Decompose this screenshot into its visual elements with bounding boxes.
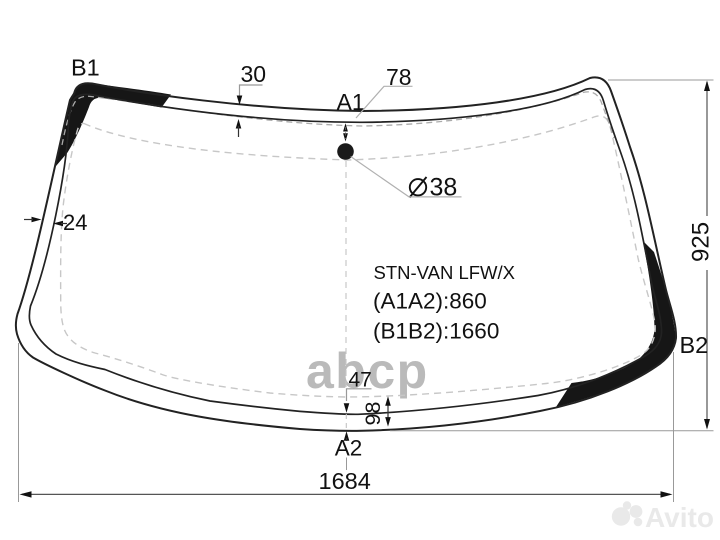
svg-text:98: 98 bbox=[361, 402, 385, 426]
svg-text:1684: 1684 bbox=[319, 468, 371, 494]
svg-text:925: 925 bbox=[688, 222, 715, 262]
svg-text:Avito: Avito bbox=[645, 502, 714, 533]
svg-text:A2: A2 bbox=[335, 436, 363, 461]
svg-text:30: 30 bbox=[241, 61, 267, 87]
svg-text:24: 24 bbox=[63, 210, 87, 235]
svg-text:STN-VAN LFW/X: STN-VAN LFW/X bbox=[374, 262, 516, 283]
svg-text:B1: B1 bbox=[71, 55, 100, 81]
svg-text:(A1A2):860: (A1A2):860 bbox=[373, 289, 487, 314]
svg-text:B2: B2 bbox=[680, 332, 709, 358]
svg-text:(B1B2):1660: (B1B2):1660 bbox=[373, 319, 499, 344]
svg-text:47: 47 bbox=[349, 369, 372, 392]
svg-text:A1: A1 bbox=[337, 89, 365, 115]
